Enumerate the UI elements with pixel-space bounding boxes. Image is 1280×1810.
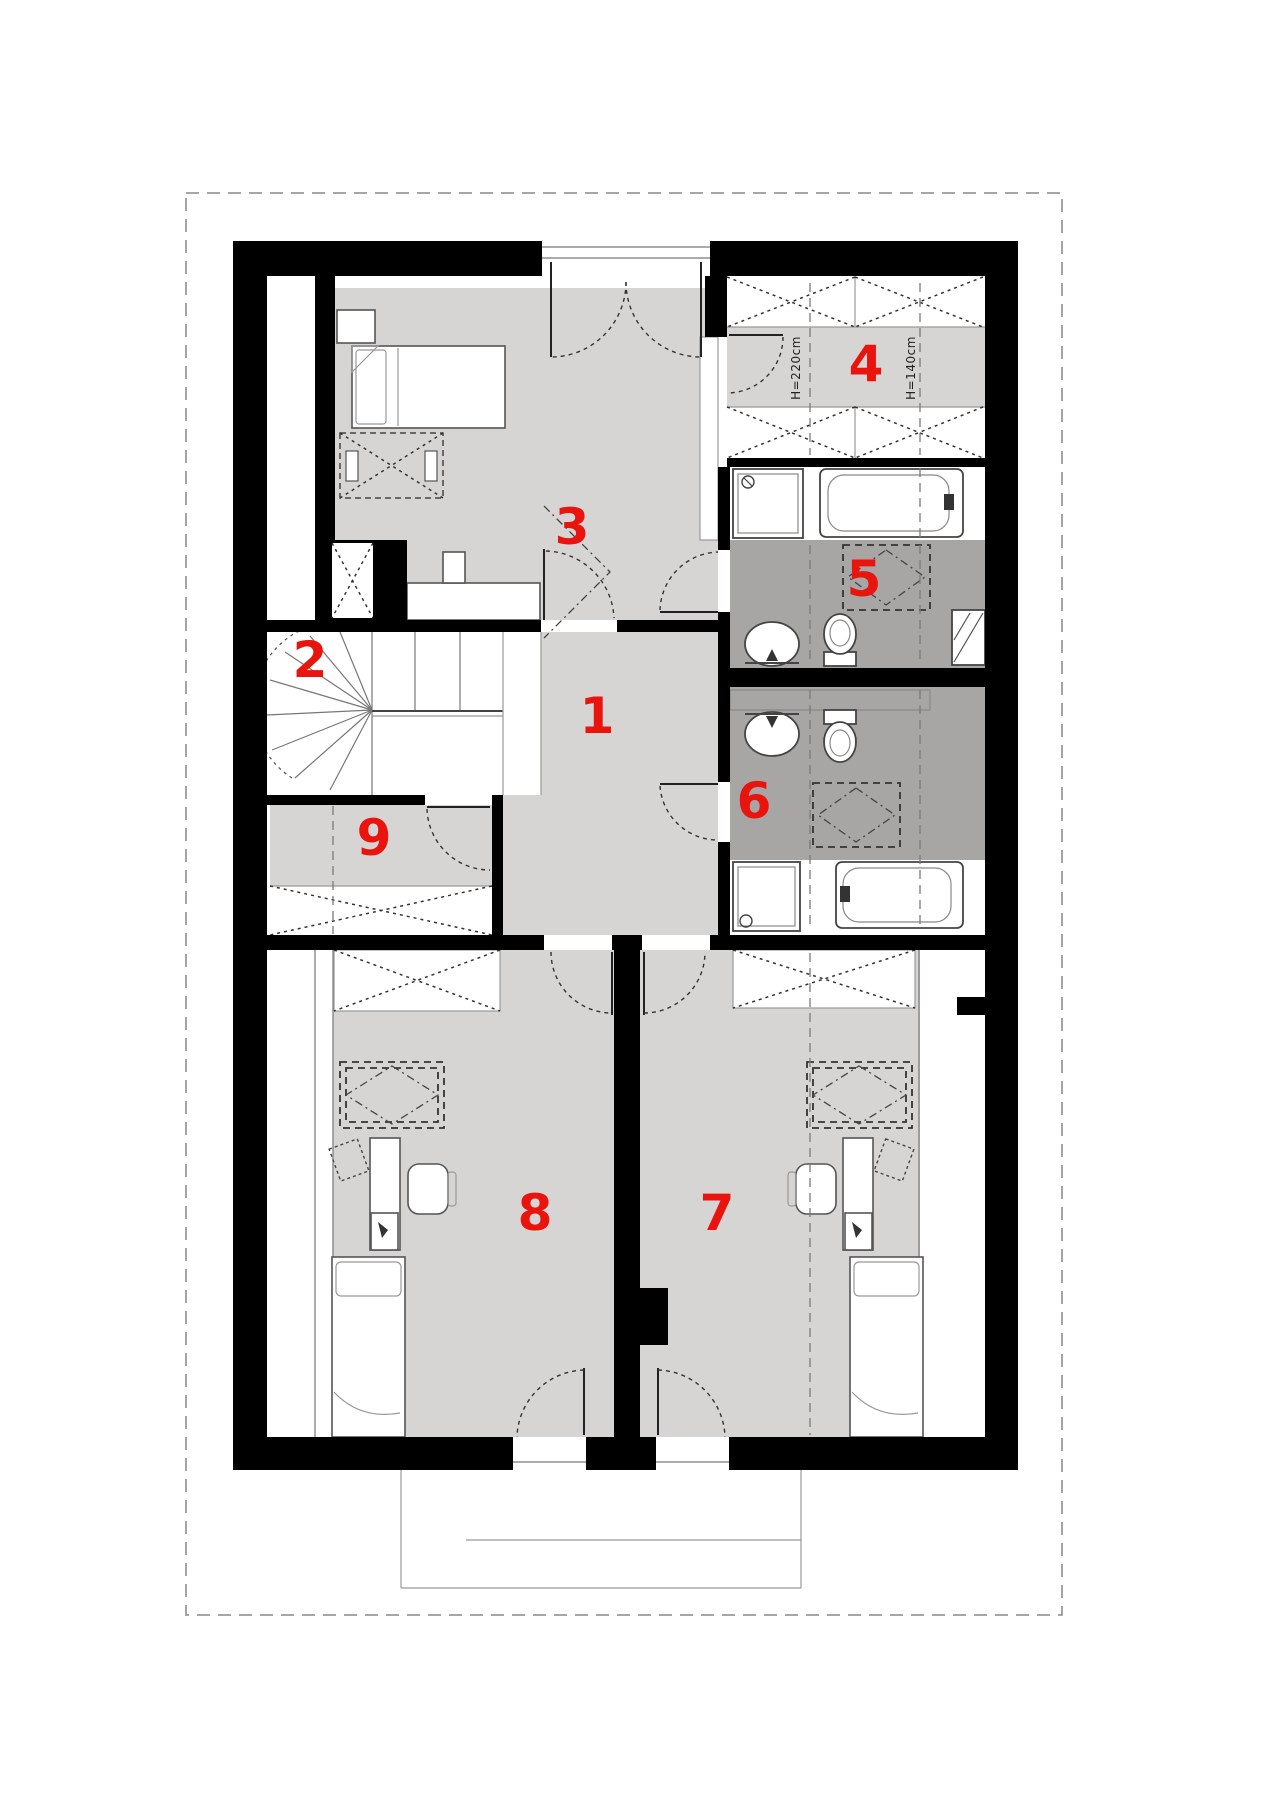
wall-bottom	[233, 1437, 1018, 1470]
duct-box	[952, 610, 985, 665]
knee-zone-left-top	[267, 276, 315, 620]
room-number-8: 8	[518, 1188, 553, 1238]
height-220-label: H=220cm	[789, 336, 803, 400]
wall-room3-south-east	[617, 620, 730, 632]
room-number-6: 6	[737, 776, 772, 826]
washbasin	[745, 622, 799, 666]
room-number-5: 5	[847, 554, 882, 604]
small-shelf	[443, 552, 465, 583]
wall-bath5-bath6	[718, 668, 985, 687]
knee-wall-left	[315, 276, 335, 540]
room4-wardrobe-top	[727, 277, 985, 327]
washbasin	[745, 712, 799, 756]
room-number-9: 9	[357, 813, 392, 863]
height-140-label: H=140cm	[904, 336, 918, 400]
floor-plan-page: 123456789 H=220cmH=140cm	[0, 0, 1280, 1810]
double-bed	[352, 346, 505, 428]
balcony-door-opening-room8	[513, 1437, 586, 1470]
wall-room9-north	[267, 795, 425, 805]
toilet	[824, 614, 856, 666]
room-number-4: 4	[849, 339, 884, 389]
room3-nook-floor	[700, 537, 718, 620]
shower	[733, 862, 800, 931]
room8-wardrobe	[334, 950, 500, 1011]
wall-south-band-east	[710, 935, 985, 950]
wall-top-right	[710, 241, 1018, 276]
room4-wardrobe-bottom	[727, 407, 985, 458]
toilet	[824, 710, 856, 762]
wall-room4-bath5	[727, 458, 985, 467]
knee-zone-right-bottom	[920, 950, 985, 1437]
wall-room3-room4	[705, 276, 727, 337]
room-number-7: 7	[700, 1188, 735, 1238]
wall-bath5-west-a	[718, 467, 730, 550]
bed	[850, 1257, 923, 1437]
knee-zone-left-bottom	[267, 950, 333, 1437]
chimney-room7	[614, 1288, 668, 1345]
wall-stub-hall	[612, 935, 642, 950]
wall-right	[985, 241, 1018, 1470]
hall-floor-upper	[541, 632, 718, 795]
wall-top-left	[233, 241, 542, 276]
wall-room9-east	[492, 795, 503, 935]
low-cabinet	[407, 583, 540, 620]
bathtub	[820, 469, 963, 537]
bathtub	[836, 862, 963, 928]
chimney-shaft	[315, 540, 407, 632]
wall-left	[233, 241, 267, 1470]
wall-bath6-west-b	[718, 842, 730, 937]
room-number-3: 3	[555, 502, 590, 552]
bed	[332, 1257, 405, 1437]
wall-south-band-west	[267, 935, 544, 950]
room9-wardrobe	[270, 886, 492, 935]
room-number-1: 1	[580, 691, 615, 741]
balcony-door-opening-room7	[656, 1437, 729, 1470]
shower	[733, 469, 803, 538]
floor-plan-drawing	[0, 0, 1280, 1810]
room-number-2: 2	[293, 635, 328, 685]
balcony-outline	[401, 1470, 801, 1588]
wall-room8-room7	[614, 950, 640, 1437]
knee-strip-room3-east	[700, 337, 718, 540]
room7-wardrobe	[733, 950, 915, 1008]
tub-faucet	[840, 886, 850, 902]
nightstand	[337, 310, 375, 343]
wall-stub-right	[957, 997, 985, 1015]
hall-floor-lower	[503, 795, 718, 935]
wall-bath6-west-a	[718, 687, 730, 782]
tub-faucet	[944, 494, 954, 510]
